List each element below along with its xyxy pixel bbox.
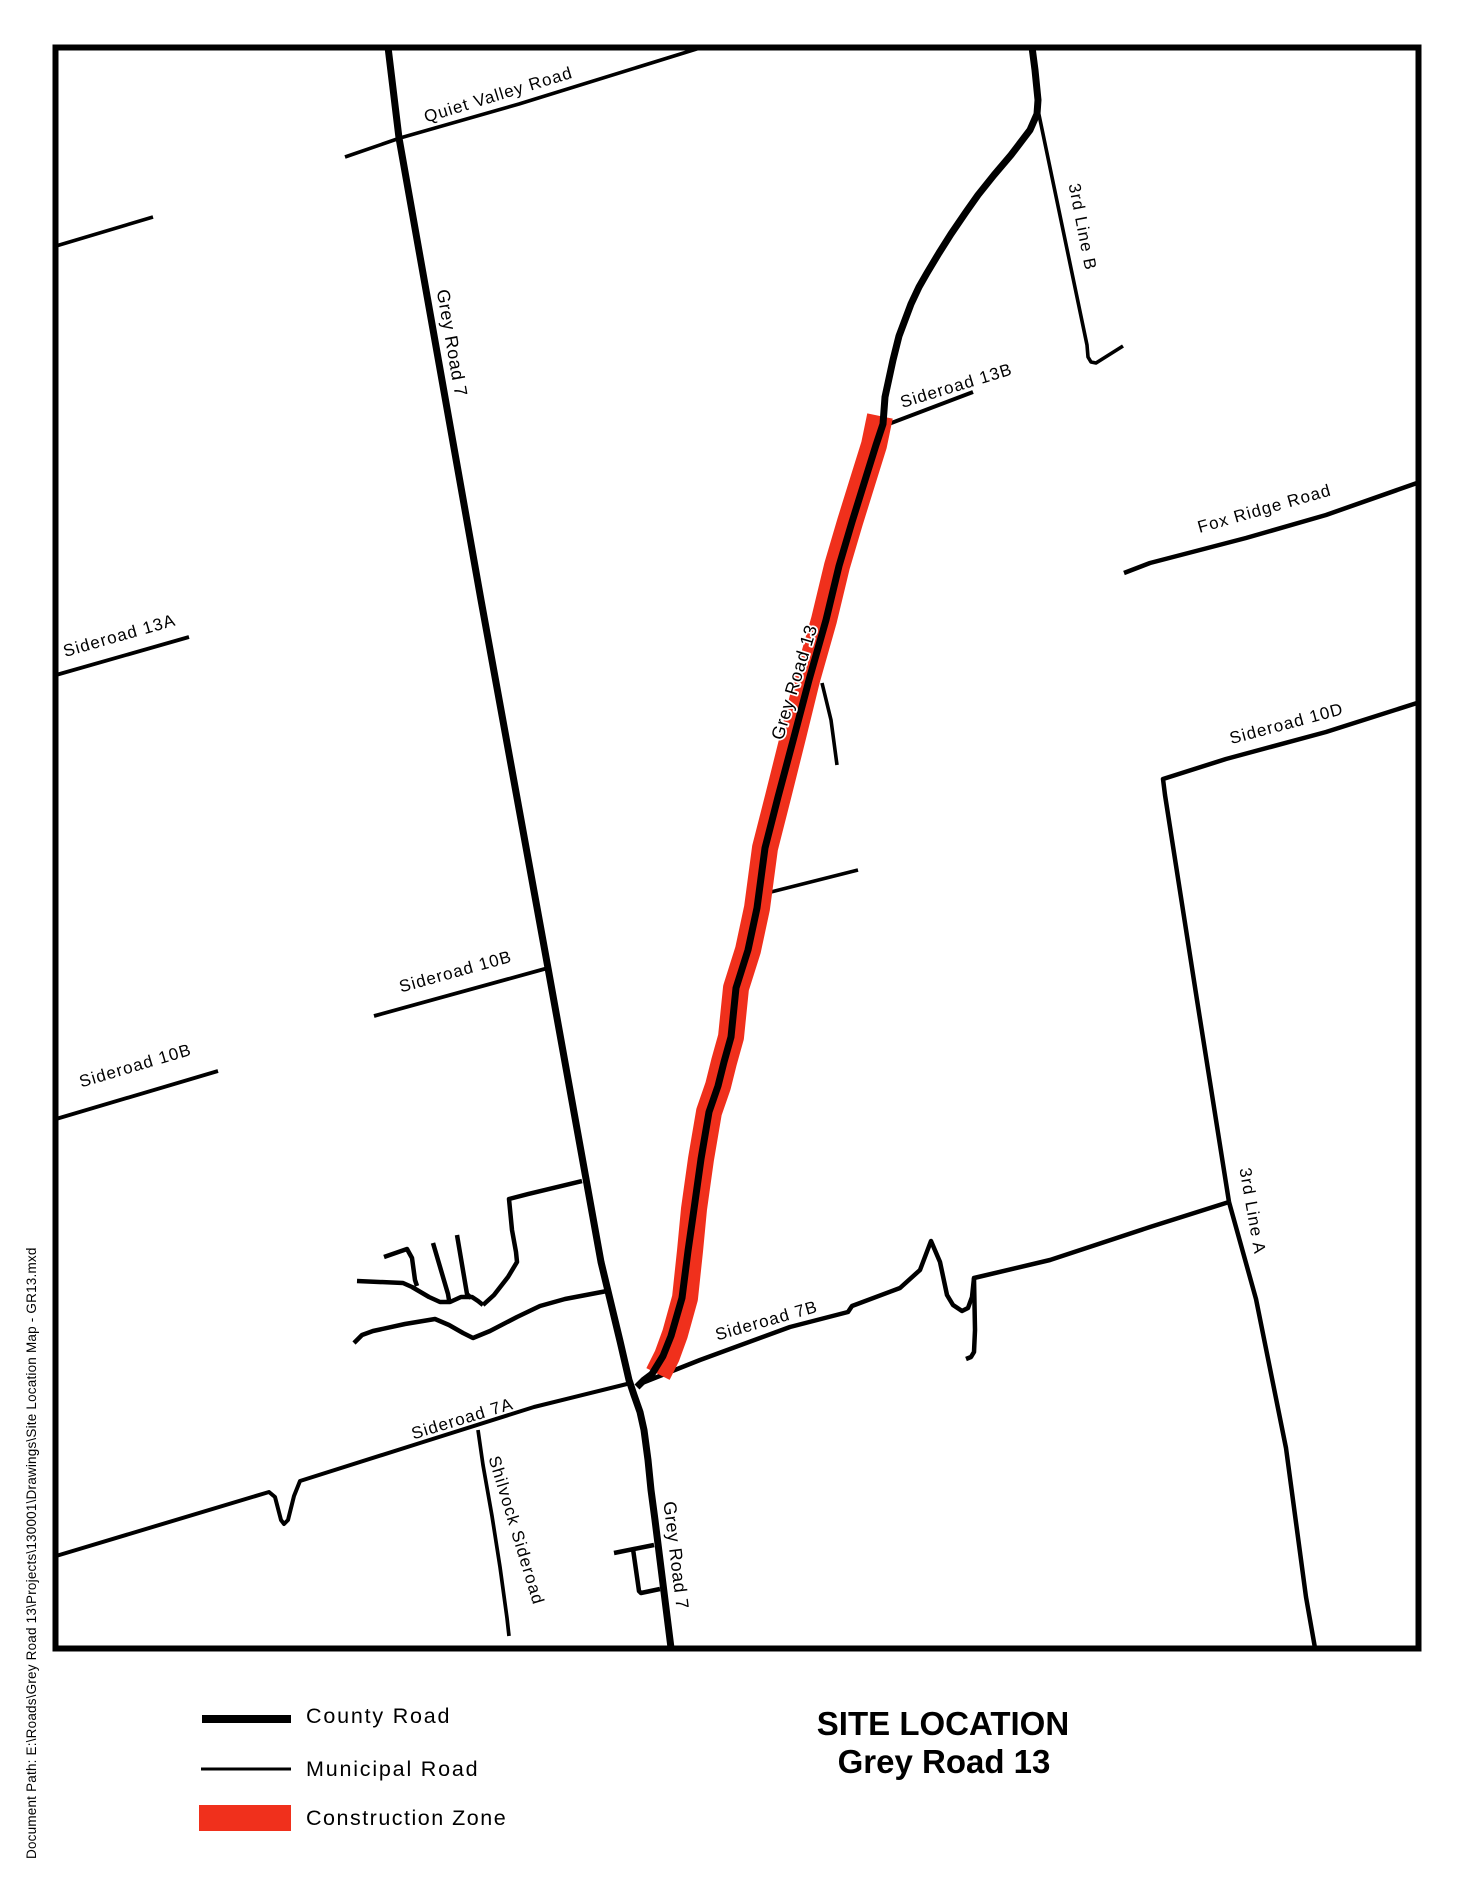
svg-text:County Road: County Road bbox=[306, 1704, 451, 1728]
svg-text:Municipal Road: Municipal Road bbox=[306, 1757, 479, 1781]
svg-text:Construction Zone: Construction Zone bbox=[306, 1806, 507, 1830]
svg-text:Grey Road 13: Grey Road 13 bbox=[838, 1743, 1051, 1780]
svg-text:SITE LOCATION: SITE LOCATION bbox=[817, 1705, 1069, 1742]
svg-text:Document Path: E:\Roads\Grey R: Document Path: E:\Roads\Grey Road 13\Pro… bbox=[24, 1247, 39, 1859]
